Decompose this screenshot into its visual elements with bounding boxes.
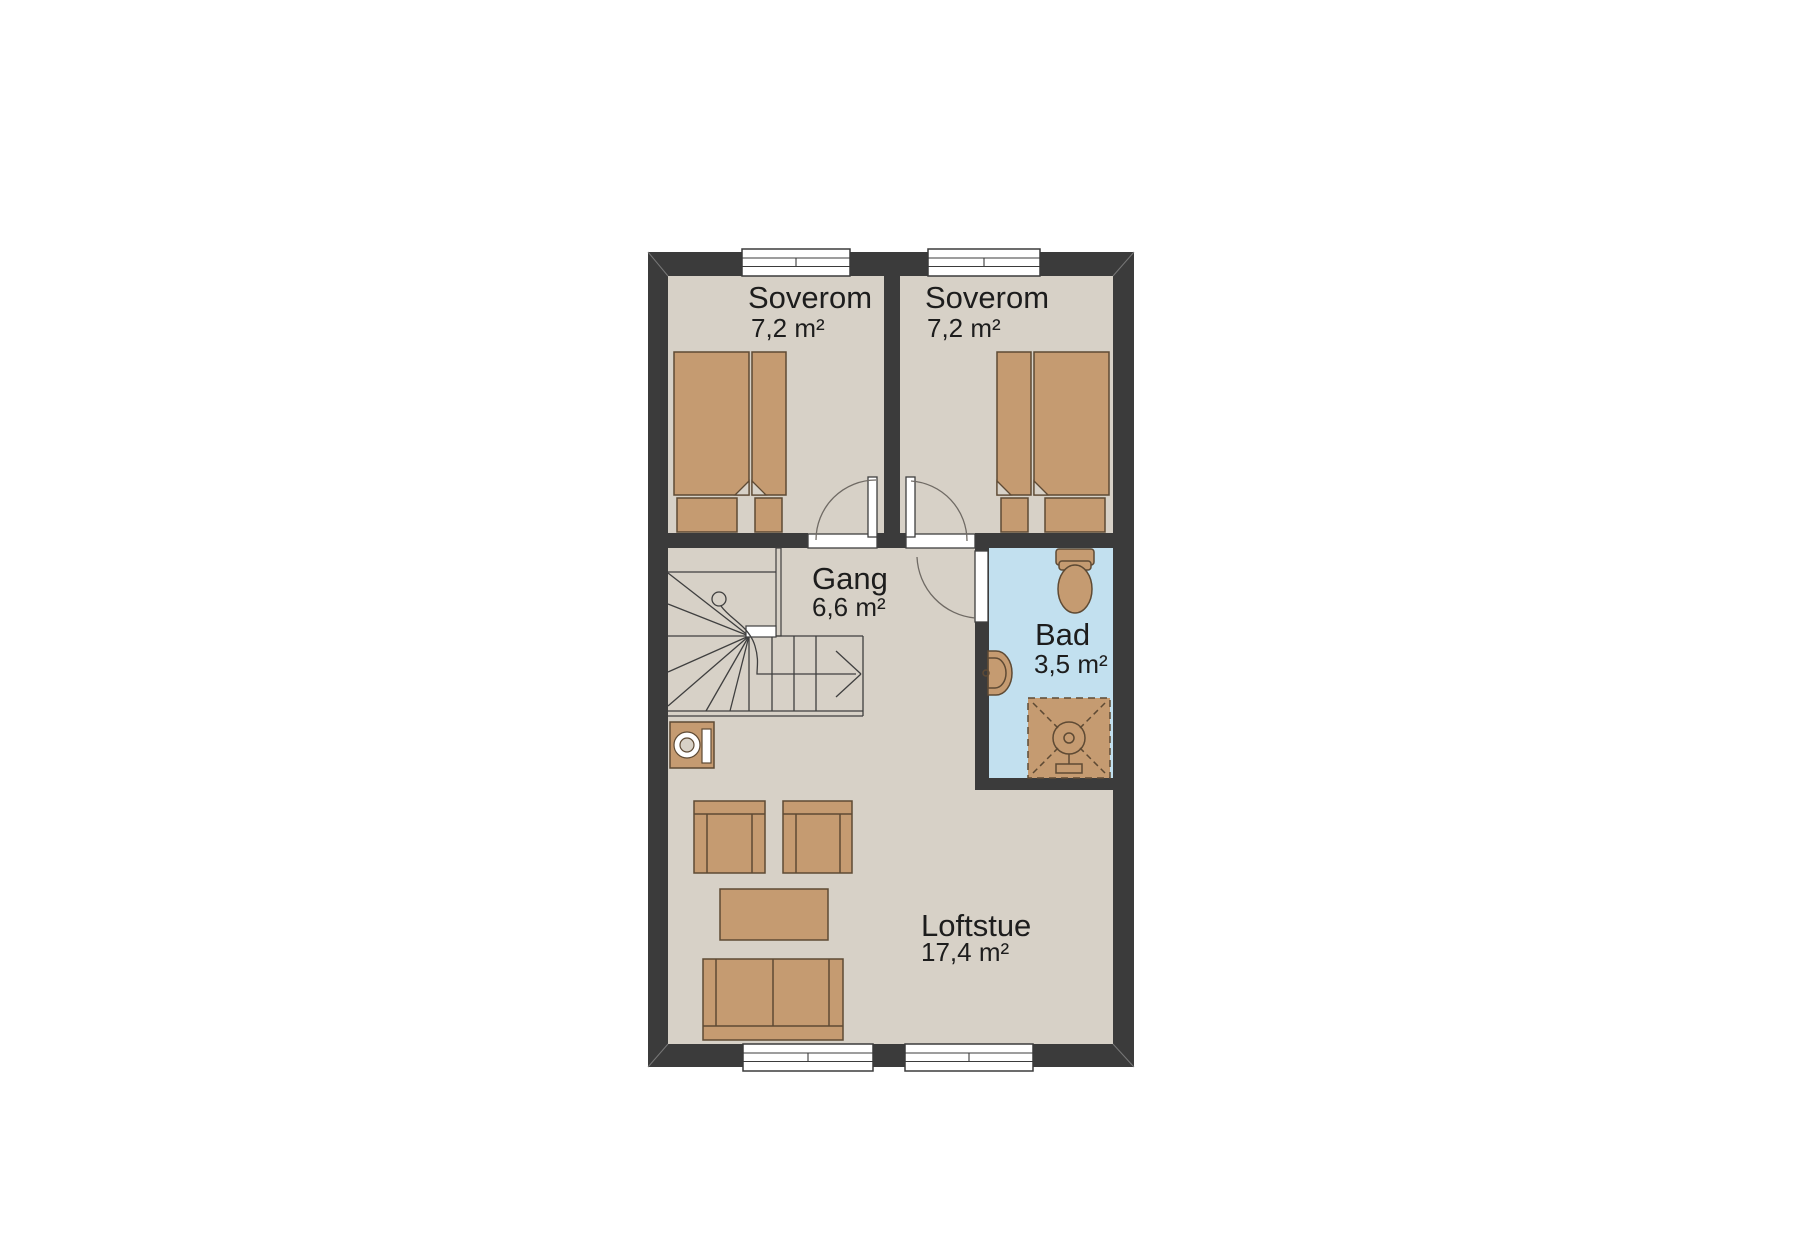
bed-icon bbox=[997, 352, 1109, 532]
window-top-left bbox=[742, 249, 850, 276]
bed-mattress-wide bbox=[1034, 352, 1109, 495]
window-bottom-left bbox=[743, 1044, 873, 1071]
bed-pillow bbox=[1045, 498, 1105, 532]
room-label-bad: Bad bbox=[1035, 617, 1090, 652]
sofa-icon bbox=[703, 959, 843, 1040]
room-label-soverom-1: Soverom bbox=[748, 280, 872, 315]
bedroom-south-wall-right bbox=[975, 533, 1113, 548]
room-area-soverom-1: 7,2 m² bbox=[751, 313, 825, 343]
floor-plan: Soverom 7,2 m² Soverom 7,2 m² Gang 6,6 m… bbox=[0, 0, 1814, 1251]
room-label-gang: Gang bbox=[812, 561, 888, 596]
door-threshold bbox=[808, 534, 877, 548]
toilet-icon bbox=[1056, 549, 1094, 613]
room-area-soverom-2: 7,2 m² bbox=[927, 313, 1001, 343]
armchair-icon bbox=[783, 801, 852, 873]
room-area-loftstue: 17,4 m² bbox=[921, 937, 1009, 967]
exterior-wall-left bbox=[648, 252, 668, 1067]
armchair-icon bbox=[694, 801, 765, 873]
bed-mattress-narrow bbox=[997, 352, 1031, 495]
bed-mattress-narrow bbox=[752, 352, 786, 495]
bed-pillow bbox=[677, 498, 737, 532]
stove-side-panel bbox=[702, 729, 711, 763]
room-area-gang: 6,6 m² bbox=[812, 592, 886, 622]
room-area-bad: 3,5 m² bbox=[1034, 649, 1108, 679]
exterior-wall-bottom bbox=[648, 1044, 1134, 1067]
stair-railing bbox=[776, 548, 781, 636]
bedroom-2 bbox=[997, 352, 1109, 532]
armchair-body bbox=[783, 801, 852, 873]
bed-pillow bbox=[755, 498, 782, 532]
bathroom-south-wall bbox=[975, 778, 1113, 790]
door-threshold bbox=[906, 534, 975, 548]
wood-stove-icon bbox=[670, 722, 714, 768]
room-label-soverom-2: Soverom bbox=[925, 280, 1049, 315]
shower-icon bbox=[1028, 698, 1110, 778]
door-leaf bbox=[975, 551, 988, 622]
window-top-right bbox=[928, 249, 1040, 276]
bed-icon bbox=[674, 352, 786, 532]
door-leaf bbox=[906, 477, 915, 537]
sink-icon bbox=[983, 651, 1012, 695]
bed-pillow bbox=[1001, 498, 1028, 532]
page: { "page": { "background": "#ffffff" }, "… bbox=[0, 0, 1814, 1251]
interior-wall-between-bedrooms bbox=[884, 276, 900, 538]
bed-mattress-wide bbox=[674, 352, 749, 495]
armchair-body bbox=[694, 801, 765, 873]
shower-mixer bbox=[1056, 764, 1082, 773]
exterior-wall-right bbox=[1113, 252, 1134, 1067]
stove-ring-center bbox=[680, 738, 694, 752]
bedroom-1 bbox=[674, 352, 786, 532]
door-leaf bbox=[868, 477, 877, 537]
window-bottom-right bbox=[905, 1044, 1033, 1071]
exterior-wall-top bbox=[648, 252, 1134, 276]
coffee-table-icon bbox=[720, 889, 828, 940]
bedroom-south-wall-left bbox=[668, 533, 808, 548]
bedroom-south-wall-center bbox=[877, 533, 906, 548]
toilet-bowl bbox=[1058, 565, 1092, 613]
